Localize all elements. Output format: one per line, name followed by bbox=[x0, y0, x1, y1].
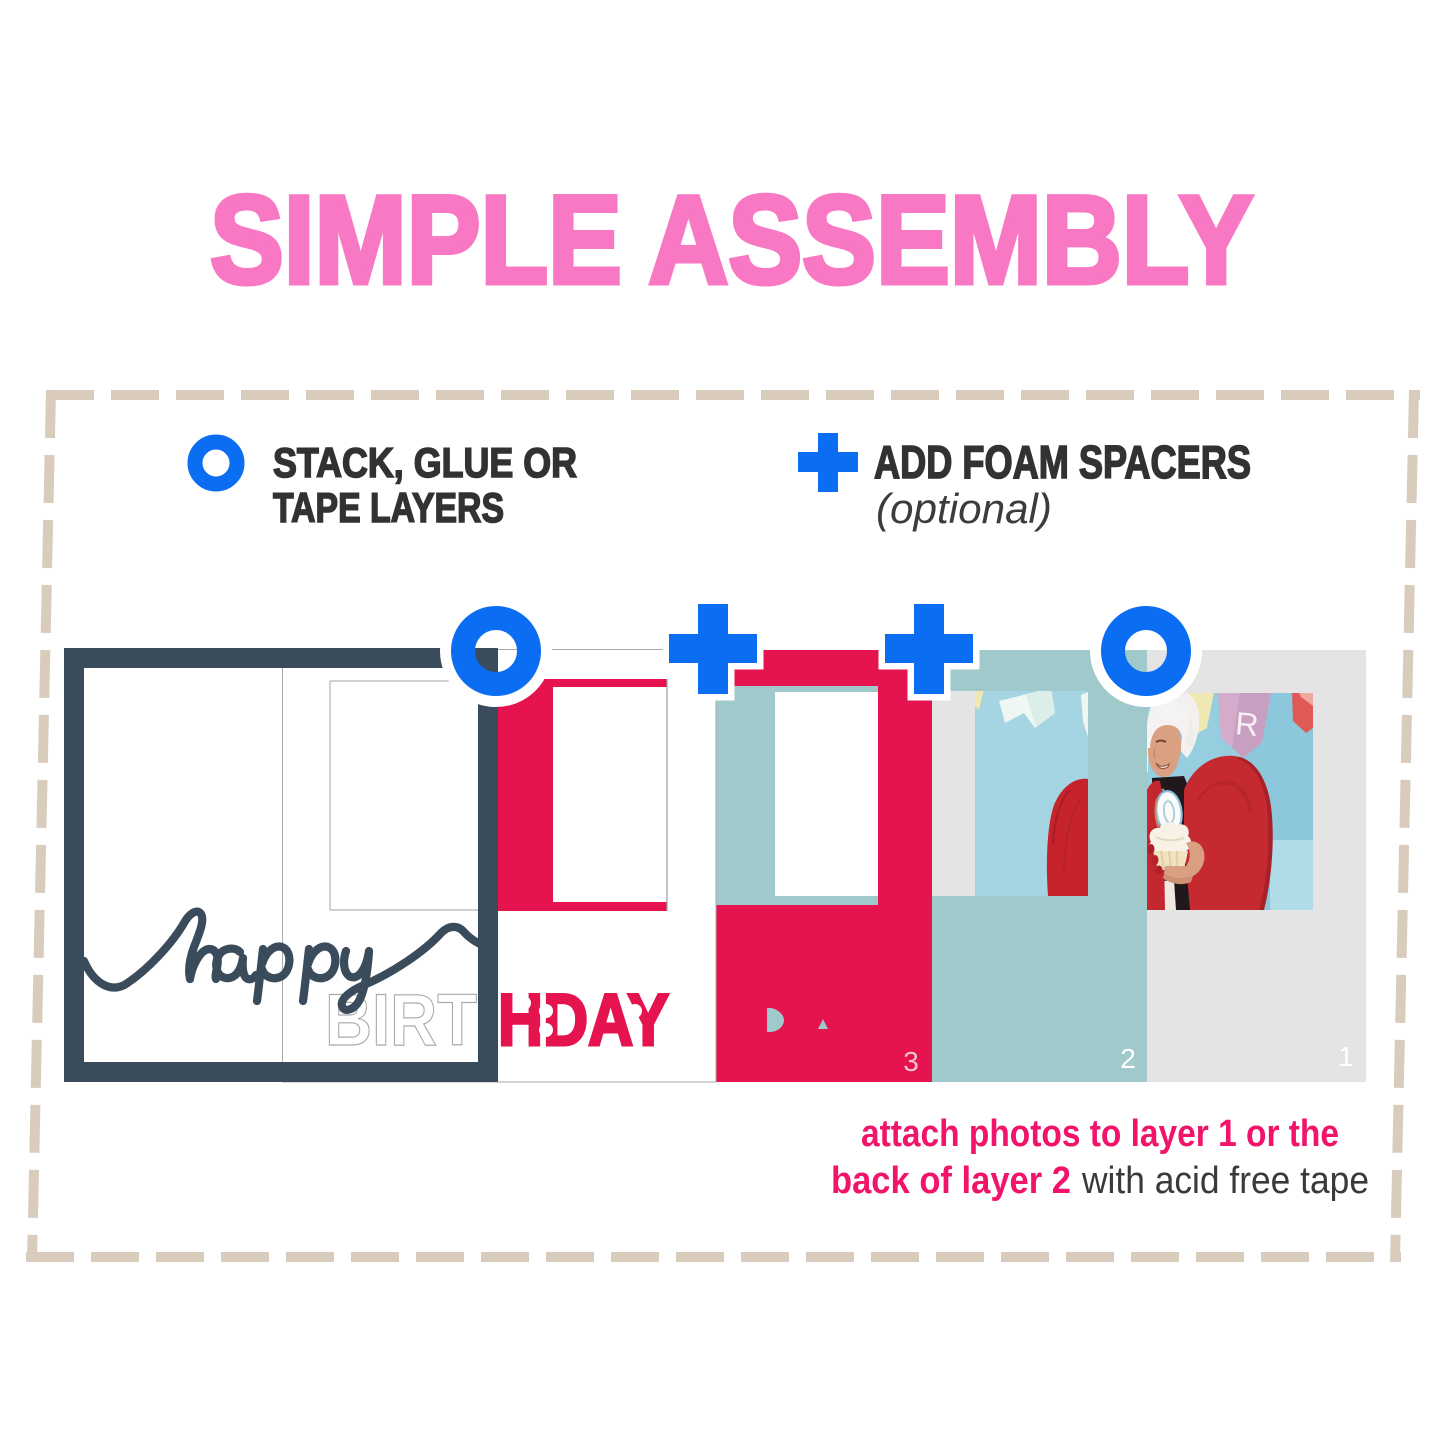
svg-text:1: 1 bbox=[1338, 1041, 1354, 1072]
svg-text:with acid free tape: with acid free tape bbox=[1081, 1160, 1369, 1202]
svg-text:SIMPLE ASSEMBLY: SIMPLE ASSEMBLY bbox=[210, 171, 1253, 310]
svg-text:back of layer 2: back of layer 2 bbox=[831, 1160, 1071, 1202]
svg-text:HDAY: HDAY bbox=[498, 980, 669, 1061]
svg-text:TAPE LAYERS: TAPE LAYERS bbox=[273, 484, 504, 531]
svg-text:STACK, GLUE OR: STACK, GLUE OR bbox=[273, 439, 577, 486]
svg-text:2: 2 bbox=[1120, 1043, 1136, 1074]
svg-text:3: 3 bbox=[903, 1046, 919, 1077]
svg-text:attach photos to layer 1 or th: attach photos to layer 1 or the bbox=[861, 1113, 1339, 1155]
svg-text:(optional): (optional) bbox=[876, 485, 1052, 532]
svg-text:ADD FOAM SPACERS: ADD FOAM SPACERS bbox=[874, 436, 1251, 488]
svg-text:R: R bbox=[1234, 705, 1260, 743]
